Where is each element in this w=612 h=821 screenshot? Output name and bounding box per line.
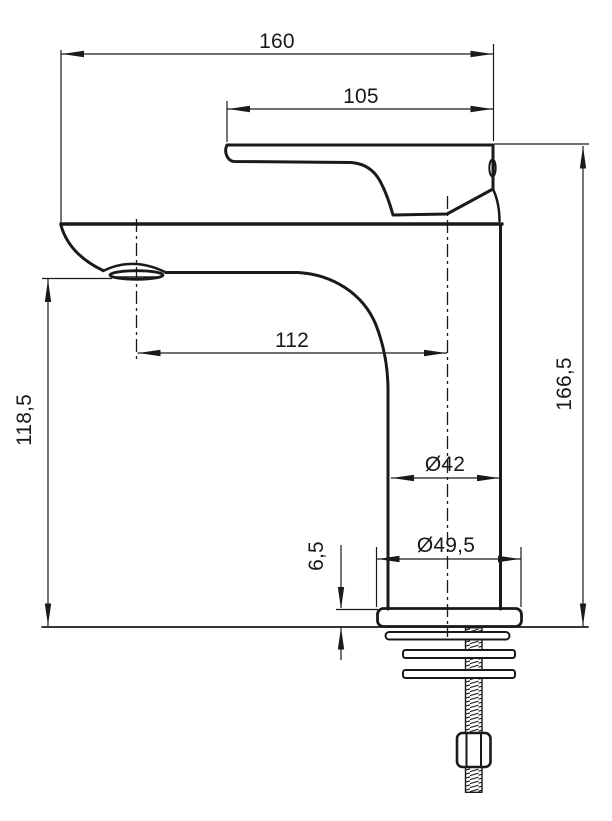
dimension-overall-width-160: 160 [61,30,494,223]
arrowhead [338,587,344,609]
arrowhead [45,280,51,302]
drawing-canvas: 160 105 112 118,5 166,5 [0,0,612,816]
nut-body [457,733,491,767]
dimension-base-plate-height-6-5: 6,5 [305,541,378,660]
dim-label-body-diameter: Ø42 [425,453,465,476]
arrowhead [477,475,499,481]
arrowhead [471,51,493,57]
mounting-nut [457,733,491,767]
rod-segment [466,639,483,650]
arrowhead [139,350,161,356]
handle-end-arc [493,189,500,221]
arrowhead [471,106,493,112]
arrowhead [498,556,520,562]
arrowhead [424,350,446,356]
faucet-outline [42,145,588,792]
dim-label-handle-length: 105 [343,85,379,108]
dim-label-spout-height: 118,5 [13,394,36,446]
dimension-spout-reach-112: 112 [138,329,448,356]
arrowhead [45,604,51,626]
dim-label-overall-width: 160 [259,30,295,53]
rod-segment [466,767,483,793]
dim-label-spout-reach: 112 [275,329,309,352]
metal-washer-1 [403,650,515,658]
spout-underside-body-left [166,273,388,610]
rod-segment [466,678,483,734]
centerlines [137,196,448,637]
rod-segment [466,658,483,670]
dimension-handle-length-105: 105 [227,85,494,142]
arrowhead [580,147,586,169]
arrowhead [392,475,414,481]
arrowhead [580,604,586,626]
faucet-technical-drawing: 160 105 112 118,5 166,5 [0,0,612,816]
dimensions: 160 105 112 118,5 166,5 [13,30,589,660]
arrowhead [62,51,84,57]
arrowhead [228,106,250,112]
dimension-overall-height-166-5: 166,5 [494,144,589,626]
metal-washer-2 [403,670,515,678]
dim-label-base-plate-height: 6,5 [305,541,328,571]
rod-segment [466,628,483,632]
spout-left-curve [61,226,103,271]
dimension-body-diameter-42: Ø42 [391,453,500,481]
dim-label-base-diameter: Ø49,5 [417,534,475,557]
base-flange [378,609,522,627]
dim-label-overall-height: 166,5 [553,357,576,411]
arrowhead [338,628,344,650]
handle-lever-outline [226,145,493,215]
dimension-spout-height-118-5: 118,5 [13,279,112,627]
